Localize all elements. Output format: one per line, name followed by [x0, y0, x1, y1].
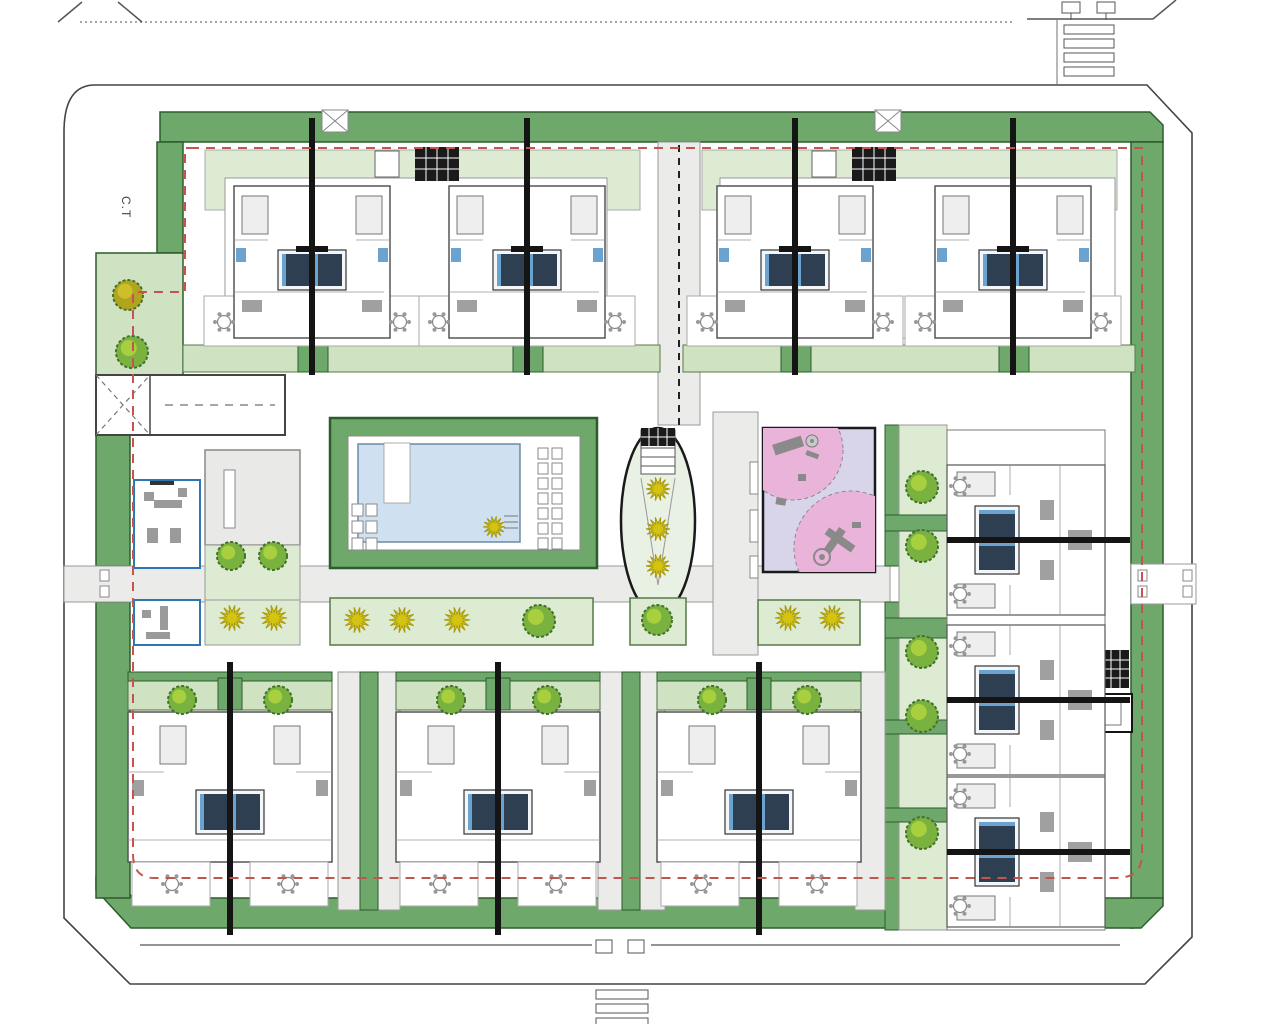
duplex-unit-bottom — [657, 662, 861, 935]
chair-dot — [1104, 312, 1108, 316]
chair-dot — [954, 744, 958, 748]
table-top — [954, 900, 967, 913]
furniture — [943, 300, 963, 312]
lift-box — [812, 151, 836, 177]
bed — [979, 822, 1015, 850]
bed — [979, 510, 1015, 538]
stair-core — [375, 147, 459, 181]
chair-dot — [949, 592, 953, 596]
sun-lounger — [552, 523, 562, 534]
chair-dot — [429, 882, 433, 886]
sun-lounger — [366, 504, 377, 516]
site-plan-drawing: C.T — [0, 0, 1280, 1024]
chair-dot — [394, 328, 398, 332]
service-building-slot — [224, 470, 235, 528]
chair-dot — [963, 652, 967, 656]
garden-strip-left-block — [183, 345, 660, 372]
sun-lounger — [352, 521, 363, 533]
table-top — [954, 640, 967, 653]
party-wall — [947, 697, 1130, 703]
sun-lounger — [538, 538, 548, 549]
pillow — [979, 822, 1015, 826]
chair-dot — [1095, 312, 1099, 316]
table-top — [609, 316, 622, 329]
tree-icon — [906, 817, 938, 849]
tree-icon — [523, 605, 555, 637]
duplex-unit-bottom — [396, 662, 600, 935]
chair-dot — [914, 320, 918, 324]
crossing-stripe — [596, 990, 648, 999]
bathroom-fixture — [236, 248, 246, 262]
site-plan-canvas: C.T — [0, 0, 1280, 1024]
chair-dot — [618, 312, 622, 316]
table-top — [954, 588, 967, 601]
chair-dot — [442, 328, 446, 332]
chair-dot — [954, 788, 958, 792]
tree-highlight — [647, 609, 662, 624]
chair-dot — [218, 328, 222, 332]
furniture — [725, 300, 745, 312]
pillow — [497, 254, 501, 286]
crossing-post — [628, 940, 644, 953]
furniture — [661, 780, 673, 796]
furniture — [1040, 720, 1054, 740]
chair-dot — [967, 592, 971, 596]
chair-dot — [609, 328, 613, 332]
chair-dot — [231, 320, 235, 324]
chair-dot — [434, 890, 438, 894]
bed — [282, 254, 310, 286]
sun-lounger — [538, 448, 548, 459]
chair-dot — [227, 328, 231, 332]
chair-dot — [954, 760, 958, 764]
bedroom-bed — [242, 196, 268, 234]
chair-dot — [394, 312, 398, 316]
chair-dot — [963, 788, 967, 792]
sun-lounger — [552, 493, 562, 504]
furniture — [1040, 560, 1054, 580]
lift-box — [375, 151, 399, 177]
bed — [468, 794, 496, 830]
chair-dot — [877, 312, 881, 316]
chair-dot — [824, 882, 828, 886]
sun-lounger — [552, 508, 562, 519]
tree-icon — [906, 471, 938, 503]
tree-highlight — [911, 704, 927, 720]
tree-highlight — [702, 690, 716, 704]
chair-dot — [928, 312, 932, 316]
tree-highlight — [797, 690, 811, 704]
tree-highlight — [268, 690, 282, 704]
bed — [765, 254, 793, 286]
chair-dot — [701, 312, 705, 316]
chair-dot — [954, 584, 958, 588]
crossing-stripe — [596, 1018, 648, 1024]
bed — [979, 670, 1015, 698]
furniture — [845, 300, 865, 312]
bedroom-bed — [356, 196, 382, 234]
chair-dot — [919, 312, 923, 316]
green-band-right — [1131, 142, 1163, 928]
table-top — [811, 878, 824, 891]
chair-dot — [1108, 320, 1112, 324]
bed — [500, 794, 528, 830]
pillow — [729, 794, 733, 830]
table-top — [954, 748, 967, 761]
chair-dot — [949, 904, 953, 908]
sun-lounger — [366, 521, 377, 533]
table-top — [166, 878, 179, 891]
sun-lounger — [366, 538, 377, 550]
crossing-stripe — [1064, 53, 1114, 62]
tree-icon — [906, 636, 938, 668]
bathroom-fixture — [719, 248, 729, 262]
chair-dot — [932, 320, 936, 324]
sun-lounger — [538, 478, 548, 489]
chair-dot — [277, 882, 281, 886]
chair-dot — [604, 320, 608, 324]
chair-dot — [963, 492, 967, 496]
duplex-unit-right — [947, 625, 1130, 775]
chair-dot — [949, 644, 953, 648]
chair-dot — [618, 328, 622, 332]
sun-lounger — [538, 493, 548, 504]
chair-dot — [954, 912, 958, 916]
crossing-post — [596, 940, 612, 953]
chair-dot — [954, 652, 958, 656]
furniture — [1040, 812, 1054, 832]
bathroom-fixture — [593, 248, 603, 262]
tree-highlight — [263, 546, 277, 560]
chair-dot — [714, 320, 718, 324]
chair-dot — [704, 874, 708, 878]
chair-dot — [704, 890, 708, 894]
chair-dot — [967, 644, 971, 648]
tree-icon — [168, 686, 196, 714]
chair-dot — [710, 328, 714, 332]
chair-dot — [291, 890, 295, 894]
party-wall-cross — [997, 246, 1029, 252]
bed — [983, 254, 1011, 286]
table-top — [1095, 316, 1108, 329]
chair-dot — [622, 320, 626, 324]
tree-icon — [698, 686, 726, 714]
bedroom-bed — [725, 196, 751, 234]
chair-dot — [166, 890, 170, 894]
chair-dot — [563, 882, 567, 886]
pillow — [468, 794, 472, 830]
chair-dot — [175, 890, 179, 894]
chair-dot — [434, 874, 438, 878]
tree-icon — [642, 605, 672, 635]
table-top — [434, 878, 447, 891]
duplex-unit-bottom — [128, 662, 332, 935]
bedroom-bed — [689, 726, 715, 764]
table-top — [394, 316, 407, 329]
chair-dot — [442, 312, 446, 316]
pool-deck-peninsula — [384, 443, 410, 503]
pillow — [979, 670, 1015, 674]
chair-dot — [886, 312, 890, 316]
plant-bed-east — [758, 600, 860, 645]
chair-dot — [954, 492, 958, 496]
chair-dot — [443, 890, 447, 894]
chair-dot — [1090, 320, 1094, 324]
party-wall — [947, 537, 1130, 543]
chair-dot — [954, 636, 958, 640]
bed — [979, 542, 1015, 570]
tree-highlight — [911, 821, 927, 837]
chair-dot — [227, 312, 231, 316]
chair-dot — [963, 600, 967, 604]
table-top — [877, 316, 890, 329]
sun-lounger — [552, 463, 562, 474]
bedroom-bed — [274, 726, 300, 764]
chair-dot — [820, 890, 824, 894]
tree-icon — [906, 700, 938, 732]
chair-dot — [175, 874, 179, 878]
chair-dot — [963, 744, 967, 748]
bedroom-bed — [803, 726, 829, 764]
tree-highlight — [528, 609, 544, 625]
chair-dot — [696, 320, 700, 324]
street-context — [58, 0, 1176, 84]
tree-icon — [533, 686, 561, 714]
bed — [729, 794, 757, 830]
bed — [497, 254, 525, 286]
bedroom-bed — [571, 196, 597, 234]
furniture — [1040, 660, 1054, 680]
party-wall — [947, 849, 1130, 855]
chair-dot — [949, 484, 953, 488]
clubhouse-building — [134, 480, 200, 568]
bedroom-bed — [428, 726, 454, 764]
party-wall-cross — [511, 246, 543, 252]
pillow — [979, 510, 1015, 514]
bedroom-bed — [457, 196, 483, 234]
tree-icon — [437, 686, 465, 714]
bed — [761, 794, 789, 830]
table-top — [954, 480, 967, 493]
green-band-left-upper — [157, 142, 183, 253]
chair-dot — [877, 328, 881, 332]
bed — [200, 794, 228, 830]
chair-dot — [708, 882, 712, 886]
chair-dot — [963, 760, 967, 764]
table-top — [701, 316, 714, 329]
chair-dot — [811, 890, 815, 894]
bed — [979, 702, 1015, 730]
pillow — [983, 254, 987, 286]
neighbor-block-corner-right — [118, 2, 142, 22]
right-block-hedge-lower — [885, 602, 899, 930]
chair-dot — [710, 312, 714, 316]
bathroom-fixture — [451, 248, 461, 262]
furniture — [457, 300, 477, 312]
furniture — [584, 780, 596, 796]
tree-highlight — [172, 690, 186, 704]
furniture — [400, 780, 412, 796]
tree-highlight — [441, 690, 455, 704]
furniture — [845, 780, 857, 796]
chair-dot — [954, 804, 958, 808]
crossing-stripe — [1064, 67, 1114, 76]
sun-lounger — [538, 463, 548, 474]
crossing-post — [1097, 2, 1115, 13]
chair-dot — [433, 328, 437, 332]
bed — [529, 254, 557, 286]
chair-dot — [806, 882, 810, 886]
chair-dot — [407, 320, 411, 324]
party-wall-cross — [779, 246, 811, 252]
furniture — [362, 300, 382, 312]
chair-dot — [963, 476, 967, 480]
tree-highlight — [118, 284, 133, 299]
table-top — [954, 792, 967, 805]
chair-dot — [919, 328, 923, 332]
furniture — [1063, 300, 1083, 312]
chair-dot — [161, 882, 165, 886]
party-wall-cross — [296, 246, 328, 252]
chair-dot — [967, 752, 971, 756]
sun-lounger — [552, 538, 562, 549]
chair-dot — [295, 882, 299, 886]
tree-icon — [906, 530, 938, 562]
pillow — [282, 254, 286, 286]
bathroom-fixture — [937, 248, 947, 262]
chair-dot — [886, 328, 890, 332]
neighbor-block-corner-left — [58, 2, 82, 22]
table-top — [919, 316, 932, 329]
chair-dot — [446, 320, 450, 324]
furniture — [316, 780, 328, 796]
pillow — [765, 254, 769, 286]
chair-dot — [428, 320, 432, 324]
chair-dot — [559, 874, 563, 878]
chair-dot — [954, 476, 958, 480]
bed — [314, 254, 342, 286]
chair-dot — [218, 312, 222, 316]
tree-icon — [113, 280, 143, 310]
chair-dot — [954, 600, 958, 604]
pillow — [200, 794, 204, 830]
chair-dot — [949, 796, 953, 800]
bed — [797, 254, 825, 286]
furniture — [577, 300, 597, 312]
chair-dot — [872, 320, 876, 324]
chair-dot — [213, 320, 217, 324]
sun-lounger — [552, 478, 562, 489]
sun-lounger — [538, 508, 548, 519]
chair-dot — [963, 896, 967, 900]
bedroom-bed — [542, 726, 568, 764]
bathroom-fixture — [1079, 248, 1089, 262]
tree-icon — [793, 686, 821, 714]
crossing-stripe — [1064, 25, 1114, 34]
chair-dot — [403, 312, 407, 316]
table-top — [218, 316, 231, 329]
bedroom-bed — [160, 726, 186, 764]
chair-dot — [967, 484, 971, 488]
chair-dot — [433, 312, 437, 316]
furniture — [1040, 872, 1054, 892]
tree-highlight — [911, 475, 927, 491]
clubhouse-plant-bed — [205, 600, 300, 645]
chair-dot — [695, 890, 699, 894]
party-wall — [495, 662, 501, 935]
sun-lounger — [552, 448, 562, 459]
chair-dot — [967, 904, 971, 908]
chair-dot — [701, 328, 705, 332]
bedroom-bed — [839, 196, 865, 234]
bed — [232, 794, 260, 830]
chair-dot — [545, 882, 549, 886]
chair-dot — [890, 320, 894, 324]
furniture — [242, 300, 262, 312]
chair-dot — [949, 752, 953, 756]
garden-strip-right-block — [683, 345, 1135, 372]
chair-dot — [967, 796, 971, 800]
chair-dot — [403, 328, 407, 332]
right-block-hedge-upper — [885, 425, 899, 566]
stair-core — [812, 147, 896, 181]
bed — [1015, 254, 1043, 286]
chair-dot — [447, 882, 451, 886]
tree-icon — [264, 686, 292, 714]
chair-dot — [963, 636, 967, 640]
tree-icon — [259, 542, 287, 570]
chair-dot — [963, 912, 967, 916]
table-top — [282, 878, 295, 891]
tree-highlight — [911, 640, 927, 656]
tree-highlight — [911, 534, 927, 550]
chair-dot — [963, 804, 967, 808]
chair-dot — [963, 584, 967, 588]
table-top — [433, 316, 446, 329]
chair-dot — [690, 882, 694, 886]
furniture — [1040, 500, 1054, 520]
crossing-stripe — [1064, 39, 1114, 48]
bathroom-fixture — [378, 248, 388, 262]
service-building — [205, 450, 300, 545]
crossing-stripe — [596, 1004, 648, 1013]
chair-dot — [282, 890, 286, 894]
chair-dot — [179, 882, 183, 886]
duplex-unit-right — [947, 777, 1130, 927]
chair-dot — [550, 890, 554, 894]
sun-lounger — [352, 538, 363, 550]
corridor-benches — [750, 462, 758, 578]
tree-highlight — [537, 690, 551, 704]
table-top — [695, 878, 708, 891]
sun-lounger — [538, 523, 548, 534]
chair-dot — [1095, 328, 1099, 332]
green-band-left-lower — [96, 602, 130, 898]
tree-highlight — [121, 340, 137, 356]
crossing-post — [1062, 2, 1080, 13]
oval-island — [621, 428, 695, 614]
duplex-unit-right — [947, 465, 1130, 615]
chair-dot — [389, 320, 393, 324]
chair-dot — [609, 312, 613, 316]
bathroom-fixture — [861, 248, 871, 262]
transformer-station-label: C.T — [119, 196, 133, 218]
bedroom-bed — [943, 196, 969, 234]
chair-dot — [954, 896, 958, 900]
bedroom-bed — [1057, 196, 1083, 234]
chair-dot — [559, 890, 563, 894]
table-top — [550, 878, 563, 891]
